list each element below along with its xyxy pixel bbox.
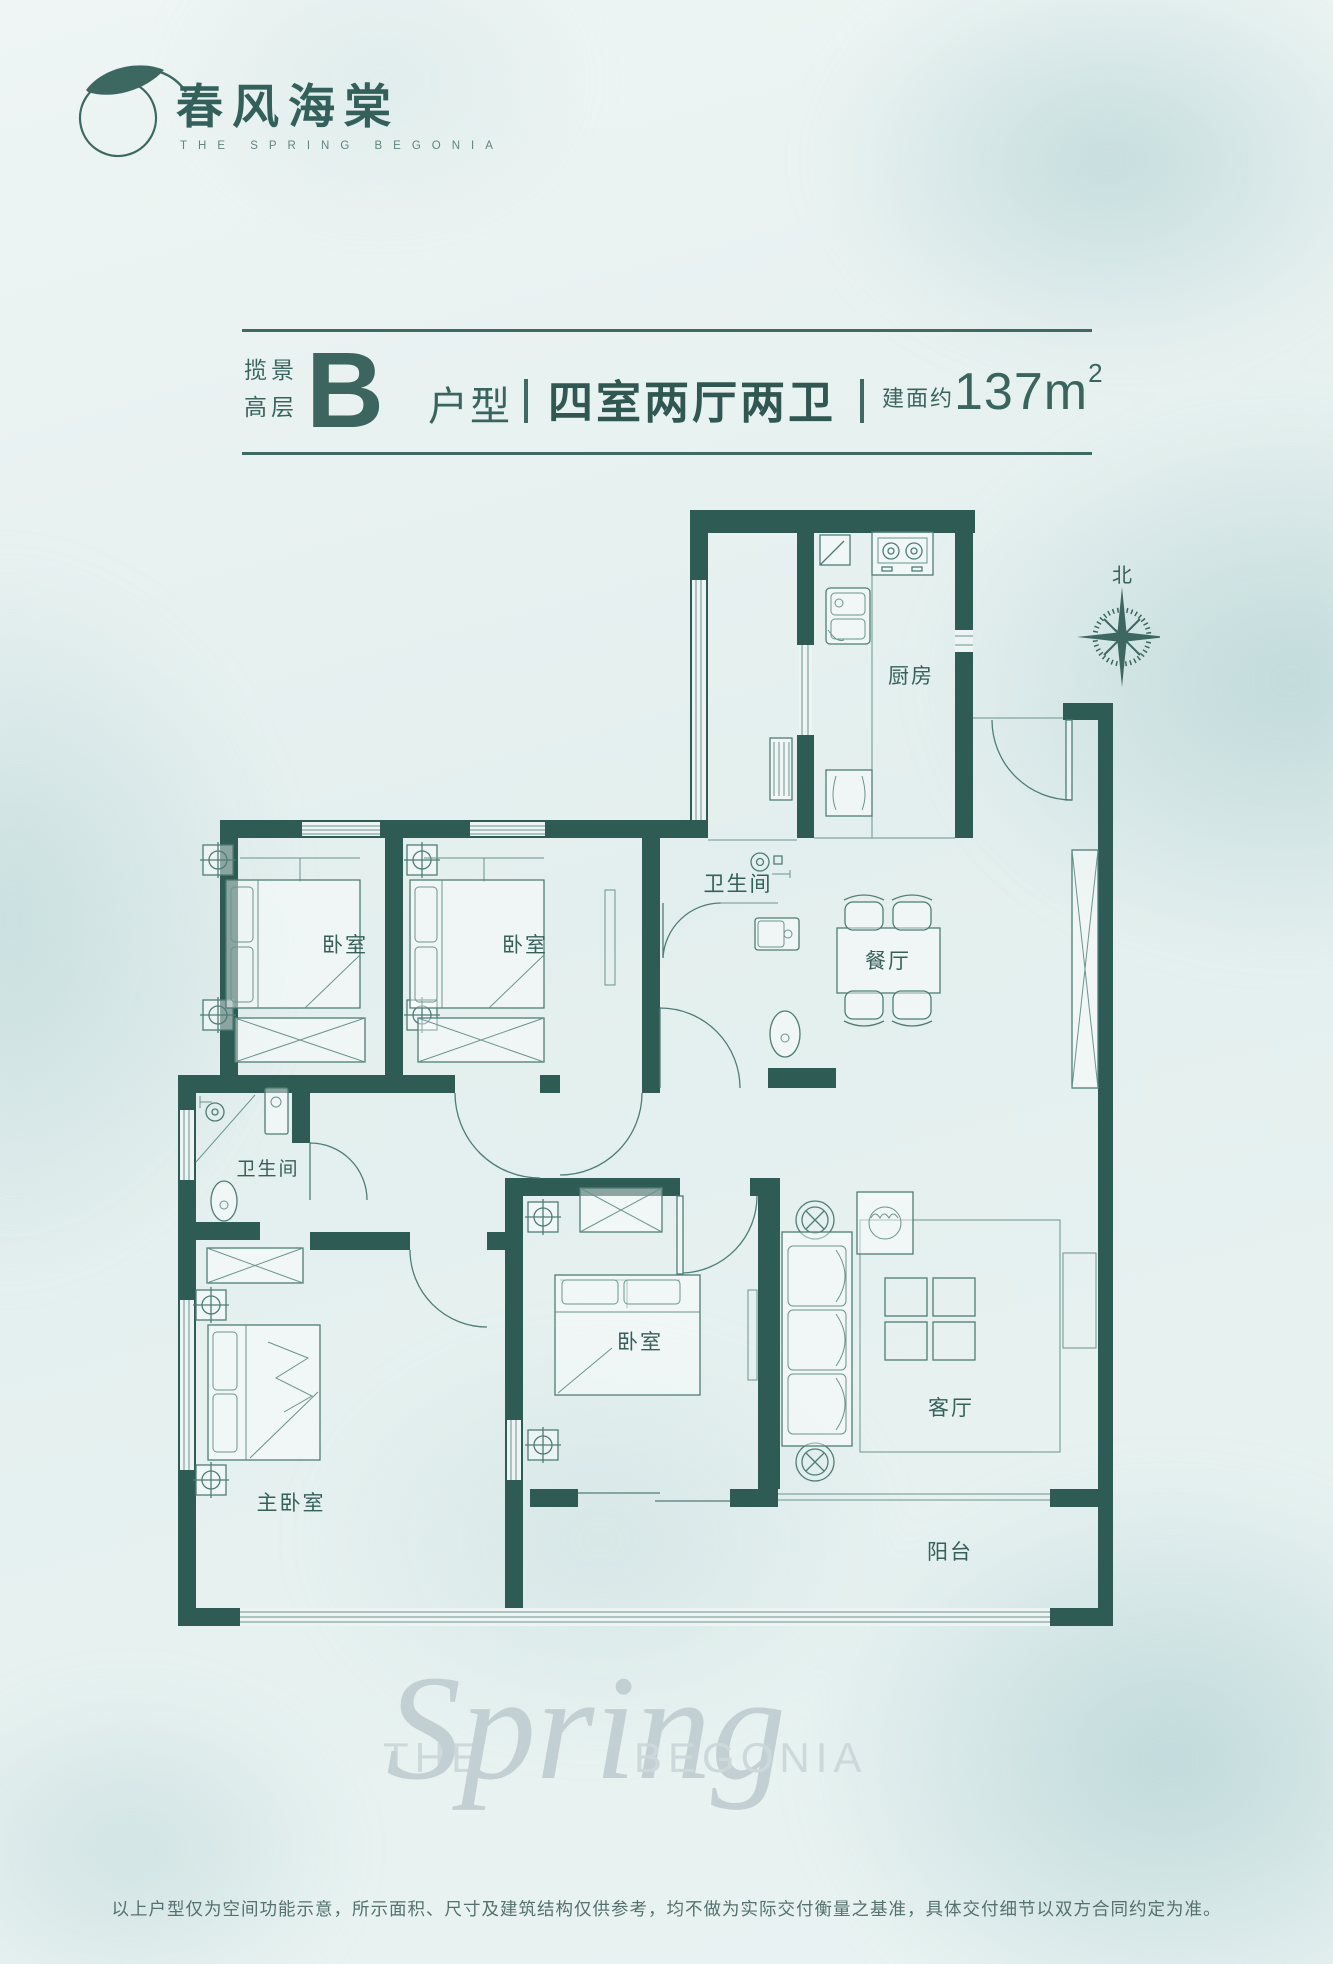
area-sup: 2 bbox=[1088, 358, 1103, 388]
column-marker-icon bbox=[193, 1287, 229, 1323]
unit-area: 建面约 137m2 bbox=[882, 362, 1104, 422]
column-marker-icon bbox=[193, 1462, 229, 1498]
area-unit: m bbox=[1044, 363, 1088, 421]
lower-bathroom-fixtures bbox=[196, 1088, 288, 1221]
column-marker-icon bbox=[525, 1199, 561, 1235]
brand-name-en: THE SPRING BEGONIA bbox=[180, 140, 504, 152]
room-label-bath-lower: 卫生间 bbox=[236, 1158, 299, 1180]
wardrobe-icon bbox=[580, 1188, 662, 1232]
cabinet-icon bbox=[1063, 1253, 1096, 1348]
room-label-bedroom2: 卧室 bbox=[502, 934, 548, 957]
sofa-icon bbox=[782, 1232, 852, 1446]
washer-icon bbox=[751, 853, 769, 871]
wardrobe-icon bbox=[235, 1018, 365, 1062]
unit-layout: 四室两厅两卫 bbox=[548, 366, 836, 431]
room-label-bedroom3: 卧室 bbox=[617, 1331, 663, 1354]
unit-suffix: 户型 bbox=[428, 374, 512, 432]
side-shelf-icon bbox=[605, 890, 615, 985]
floor-plan: 北 厨房 卫生间 餐厅 卧室 卧室 卫生间 卧室 客厅 主卧室 阳台 bbox=[160, 490, 1160, 1650]
room-label-dining: 餐厅 bbox=[865, 950, 911, 973]
title-prefix: 揽景 高层 bbox=[244, 352, 298, 426]
side-table-lamp-icon bbox=[857, 1192, 913, 1254]
bedroom3-furniture bbox=[525, 1188, 757, 1463]
dining-chair-icon bbox=[844, 895, 884, 930]
title-divider-2 bbox=[860, 379, 864, 423]
dining-chair-icon bbox=[892, 895, 932, 930]
title-rule-bottom bbox=[242, 452, 1092, 455]
bed-icon bbox=[208, 1325, 320, 1460]
title-prefix-line1: 揽景 bbox=[244, 352, 298, 389]
coffee-table-icon bbox=[885, 1278, 975, 1360]
room-label-bedroom1: 卧室 bbox=[322, 934, 368, 957]
footer-disclaimer: 以上户型仅为空间功能示意，所示面积、尺寸及建筑结构仅供参考，均不做为实际交付衡量… bbox=[0, 1896, 1333, 1921]
dining-chair-icon bbox=[844, 991, 884, 1026]
column-marker-icon bbox=[525, 1427, 561, 1463]
room-label-master: 主卧室 bbox=[257, 1492, 326, 1515]
shower-icon bbox=[196, 1095, 255, 1162]
brand-name: 春风海棠 bbox=[176, 68, 400, 137]
area-label: 建面约 bbox=[882, 381, 954, 422]
column-marker-icon bbox=[404, 842, 440, 878]
title-divider-1 bbox=[524, 379, 528, 423]
compass-north-label: 北 bbox=[1112, 564, 1132, 587]
living-furniture bbox=[782, 1192, 1096, 1481]
room-label-living: 客厅 bbox=[928, 1397, 974, 1420]
master-bedroom-furniture bbox=[193, 1248, 320, 1498]
watermark-begonia: BEGONIA bbox=[634, 1734, 867, 1782]
column-marker-icon bbox=[200, 842, 236, 878]
room-label-kitchen: 厨房 bbox=[888, 665, 934, 688]
room-label-bath-upper: 卫生间 bbox=[704, 873, 773, 896]
desk-icon bbox=[748, 1290, 757, 1380]
watermark-spring: Spring bbox=[386, 1646, 786, 1811]
unit-letter: B bbox=[306, 334, 384, 446]
shoe-cabinet-icon bbox=[1072, 850, 1098, 1088]
room-label-balcony: 阳台 bbox=[927, 1541, 973, 1564]
compass-icon: 北 bbox=[1077, 564, 1160, 687]
wardrobe-icon bbox=[418, 1018, 544, 1062]
vanity-icon bbox=[265, 1088, 288, 1134]
brand-logo-icon bbox=[70, 56, 190, 168]
title-prefix-line2: 高层 bbox=[244, 389, 298, 426]
wardrobe-icon bbox=[207, 1248, 303, 1283]
dining-chair-icon bbox=[892, 991, 932, 1026]
speaker-icon bbox=[796, 1443, 834, 1481]
watermark-the: THE bbox=[383, 1734, 485, 1782]
kitchen-sink-icon bbox=[826, 588, 870, 644]
poster-canvas: 春风海棠 THE SPRING BEGONIA 揽景 高层 B 户型 四室两厅两… bbox=[0, 0, 1333, 1964]
area-number: 137 bbox=[954, 363, 1044, 421]
area-value: 137m2 bbox=[954, 362, 1104, 422]
